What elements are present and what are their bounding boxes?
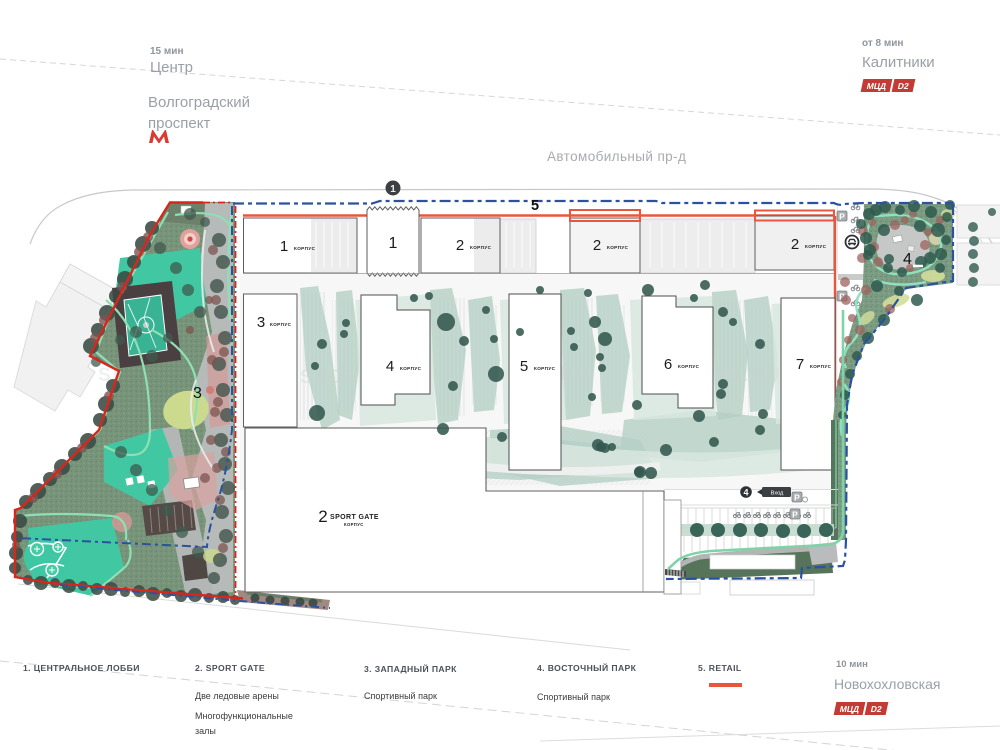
svg-text:КОРПУС: КОРПУС	[805, 244, 827, 249]
svg-text:5: 5	[531, 198, 539, 214]
svg-text:6: 6	[664, 356, 672, 373]
svg-text:КОРПУС: КОРПУС	[400, 366, 422, 371]
svg-text:Вход: Вход	[771, 491, 784, 497]
svg-text:7: 7	[796, 356, 804, 373]
svg-text:1: 1	[389, 235, 398, 252]
svg-text:SSDE: SSDE	[300, 367, 360, 388]
svg-text:КОРПУС: КОРПУС	[270, 322, 292, 327]
svg-text:2: 2	[791, 236, 799, 253]
svg-text:2: 2	[593, 237, 601, 254]
svg-text:КОРПУС: КОРПУС	[470, 245, 492, 250]
svg-text:3: 3	[193, 385, 202, 402]
svg-text:P: P	[792, 510, 798, 520]
svg-text:3: 3	[257, 314, 265, 331]
svg-text:4: 4	[743, 488, 748, 498]
svg-text:КОРПУС: КОРПУС	[810, 364, 832, 369]
svg-text:4: 4	[903, 251, 912, 268]
svg-text:P: P	[839, 212, 845, 222]
svg-text:КОРПУС: КОРПУС	[344, 522, 364, 527]
svg-text:5: 5	[520, 358, 528, 375]
svg-text:P: P	[794, 493, 800, 503]
svg-text:КОРПУС: КОРПУС	[534, 366, 556, 371]
svg-text:2: 2	[318, 507, 327, 526]
svg-text:2: 2	[456, 237, 464, 254]
svg-text:4: 4	[386, 358, 394, 375]
svg-text:КОРПУС: КОРПУС	[294, 246, 316, 251]
svg-text:КОРПУС: КОРПУС	[607, 245, 629, 250]
svg-text:1: 1	[390, 184, 396, 195]
svg-text:1: 1	[280, 238, 288, 255]
svg-text:КОРПУС: КОРПУС	[678, 364, 700, 369]
svg-text:SPORT GATE: SPORT GATE	[330, 514, 379, 521]
svg-text:RU: RU	[560, 364, 591, 385]
